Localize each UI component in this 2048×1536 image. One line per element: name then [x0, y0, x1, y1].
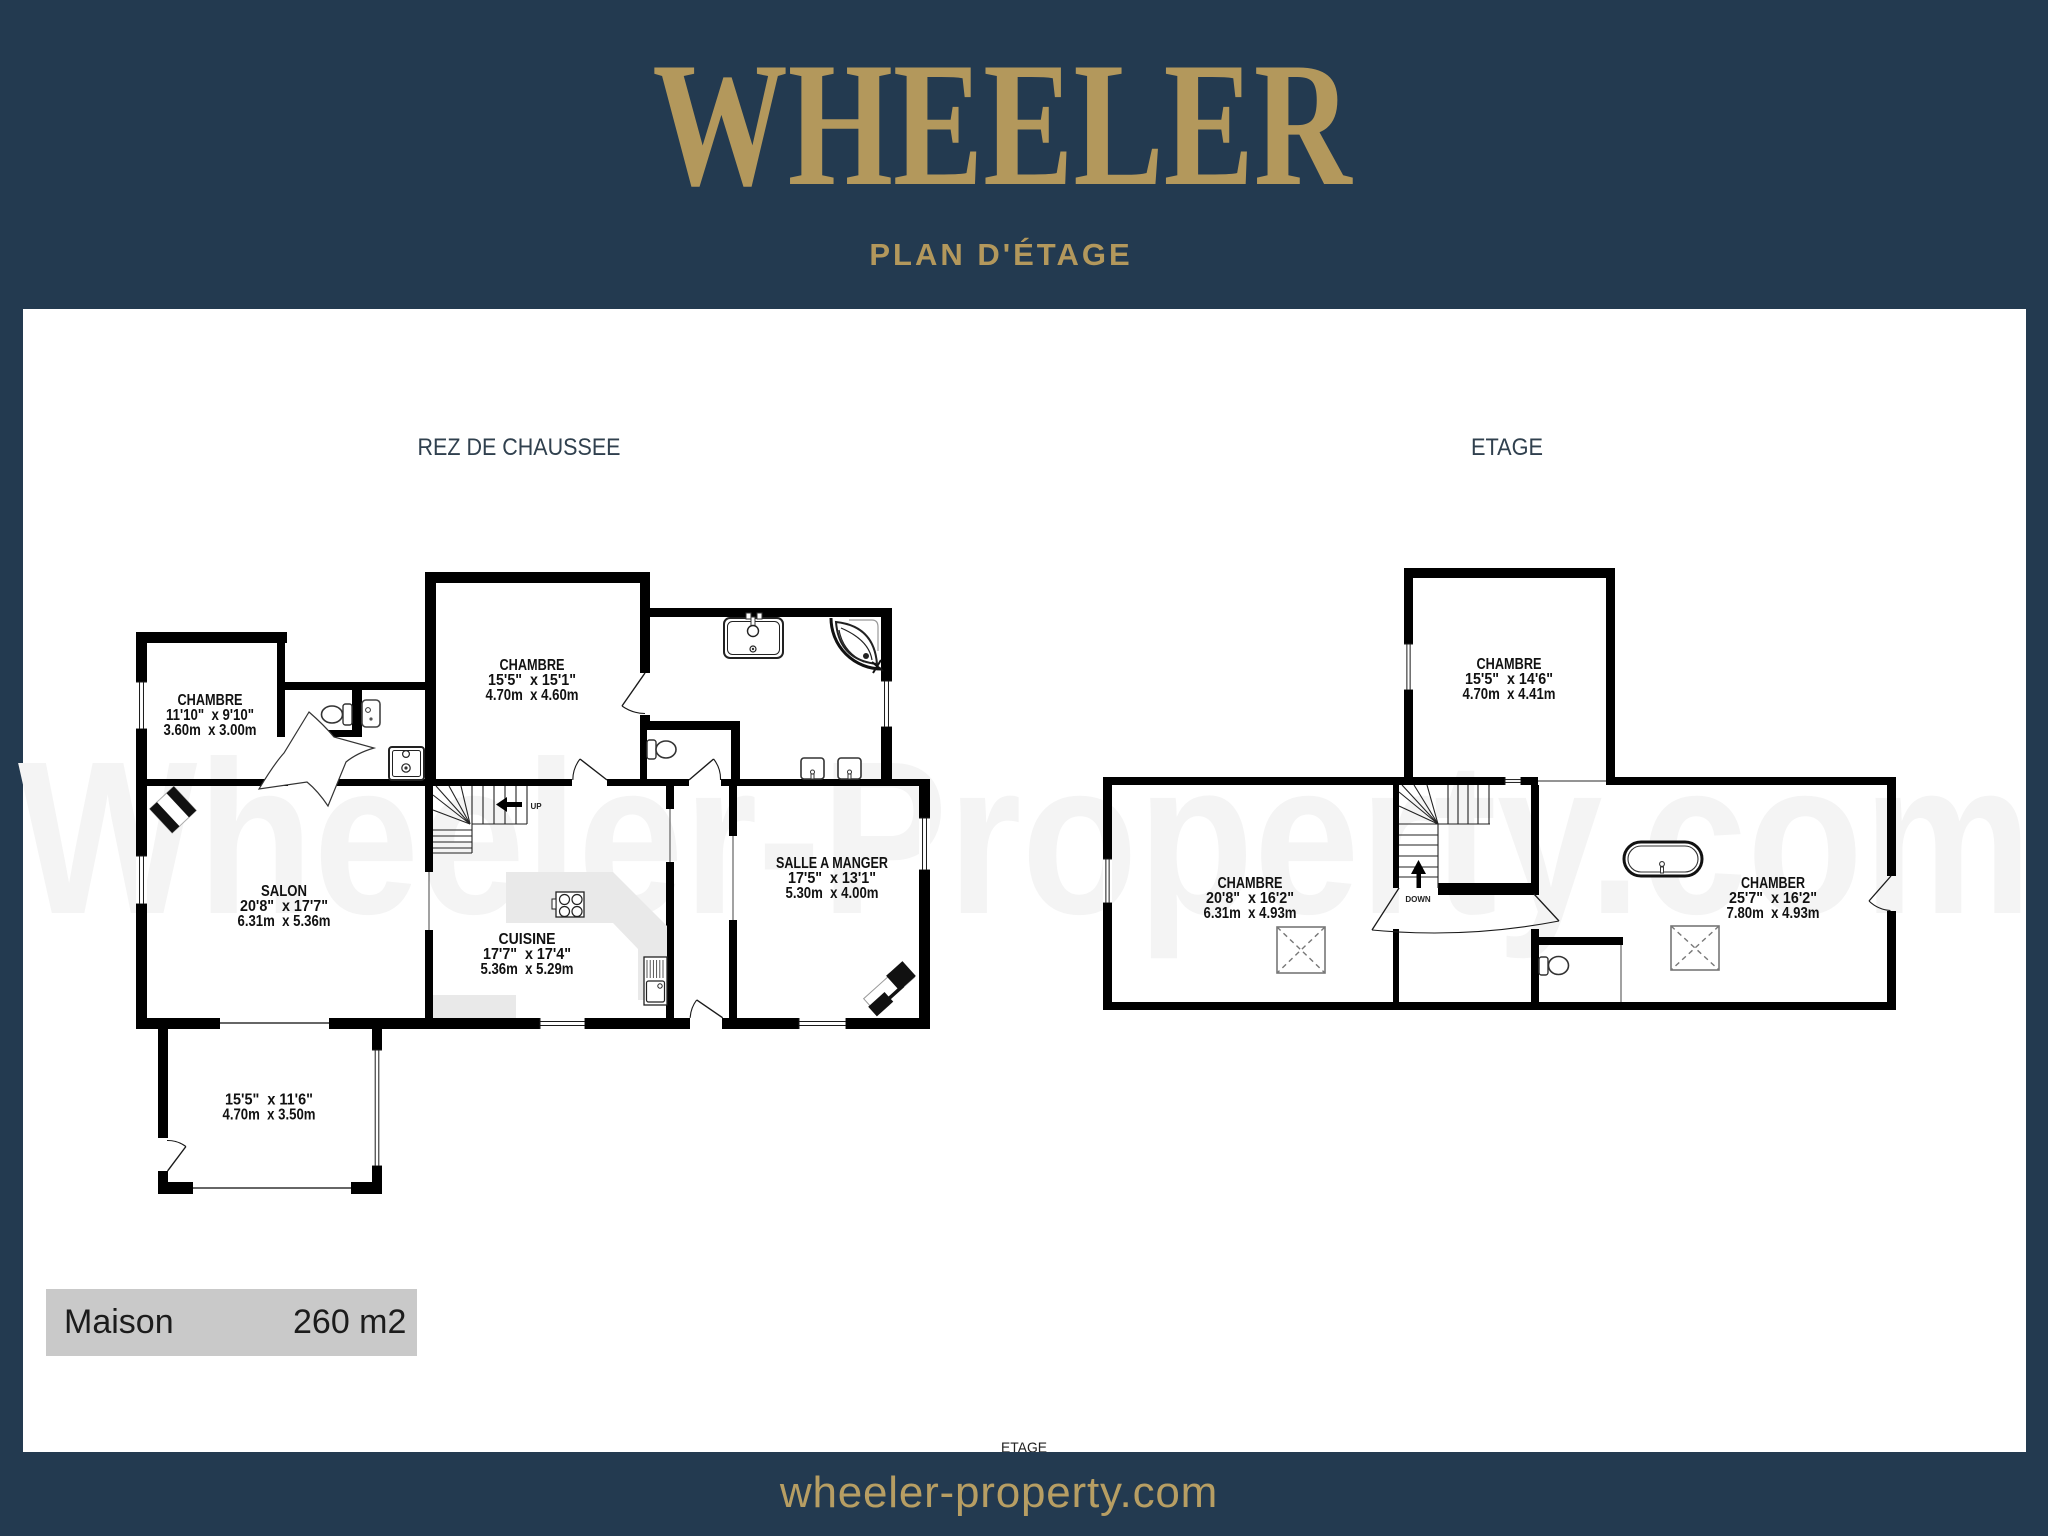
svg-text:5.36m x 5.29m: 5.36m x 5.29m	[481, 961, 574, 978]
svg-text:3.60m x 3.00m: 3.60m x 3.00m	[164, 722, 257, 739]
svg-text:5.30m x 4.00m: 5.30m x 4.00m	[786, 885, 879, 902]
svg-text:REZ DE CHAUSSEE: REZ DE CHAUSSEE	[418, 434, 621, 461]
svg-text:7.80m x 4.93m: 7.80m x 4.93m	[1727, 905, 1820, 922]
svg-text:6.31m x 5.36m: 6.31m x 5.36m	[238, 913, 331, 930]
svg-text:DOWN: DOWN	[1405, 895, 1431, 904]
svg-text:ETAGE: ETAGE	[1471, 434, 1543, 461]
svg-text:4.70m x 3.50m: 4.70m x 3.50m	[223, 1107, 316, 1124]
svg-text:4.70m x 4.60m: 4.70m x 4.60m	[486, 687, 579, 704]
svg-text:6.31m x 4.93m: 6.31m x 4.93m	[1204, 905, 1297, 922]
svg-text:4.70m x 4.41m: 4.70m x 4.41m	[1463, 686, 1556, 703]
svg-text:UP: UP	[530, 802, 542, 811]
